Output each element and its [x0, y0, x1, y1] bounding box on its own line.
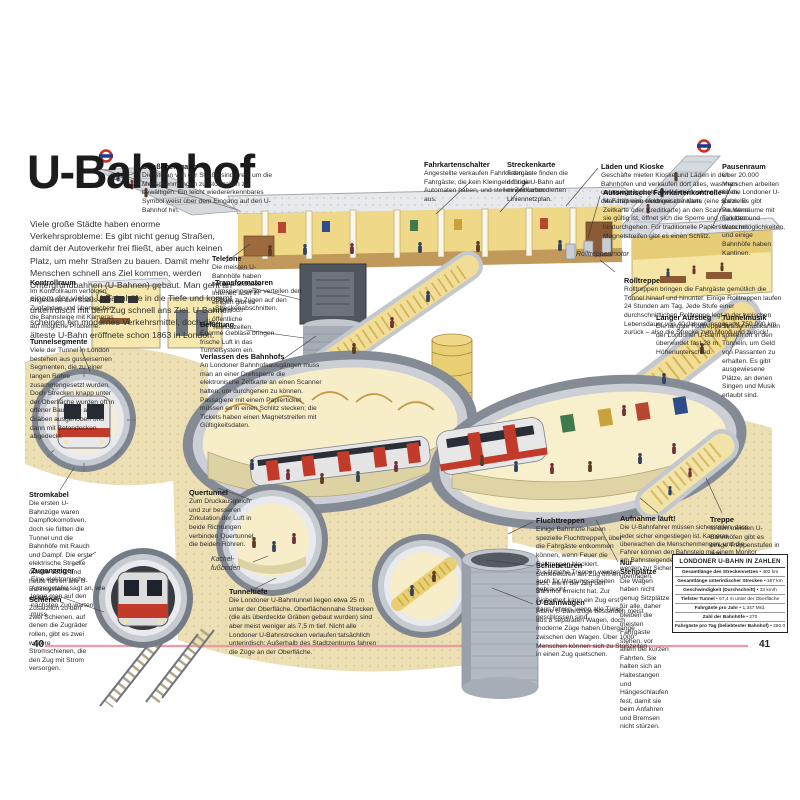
vertical-shaft [462, 549, 538, 699]
label-text: Die Wagen haben nicht genug Sitzplätze f… [620, 578, 669, 731]
label-title: Tunnelsegmente [30, 337, 116, 346]
stats-row: Gesamtlänge unterirdischer Strecken • 16… [675, 576, 785, 585]
label-title: Pausenraum [722, 162, 782, 171]
label-kachelfussboden: Kachel­fußboden [211, 556, 255, 575]
cutaway-illustration [0, 0, 800, 800]
label-title: Läden und Kioske [601, 162, 741, 171]
label-rolltreppenmotor: Rolltreppenmotor [576, 251, 628, 261]
label-title: Zuganzeiger [31, 566, 107, 575]
label-title: Tunneltiefe [229, 587, 381, 596]
label-schienen: SchienenZusätzlich zu den zwei Schienen,… [29, 595, 93, 674]
page-number-left: 40 [33, 639, 44, 650]
label-streckenkarte: StreckenkarteFahrgäste finden die richti… [507, 160, 571, 205]
label-tunneltiefe: TunneltiefeDie Londoner U-Bahntunnel lie… [229, 587, 381, 657]
label-title: Verlassen des Bahnhofs [200, 352, 324, 361]
label-text: Im Kontrollraum verfolgen Angestellte de… [30, 288, 114, 329]
label-text: Zum Druckausgleich und zur besseren Zirk… [189, 498, 253, 548]
stats-box: LONDONER U-BAHN IN ZAHLEN Gesamtlänge de… [672, 554, 788, 633]
label-text: Die längste Rolltreppe in der Londoner U… [656, 323, 729, 356]
lower-escalator-passage [372, 534, 476, 638]
label-tunnelsegmente: TunnelsegmenteViele der Tunnel in London… [30, 337, 116, 442]
label-text: Viele der Tunnel in London bestehen aus … [30, 347, 114, 440]
ubahn-roundel-sign [697, 141, 711, 152]
stats-row: Zahl der Bahnhöfe • 270 [675, 612, 785, 621]
label-title: Telefone [212, 254, 270, 263]
label-kontrollraum: KontrollraumIm Kontrollraum verfolgen An… [30, 278, 124, 331]
label-text: Enorme Gebläse bringen frische Luft in d… [200, 330, 274, 354]
label-text: Die Stufen von der Straße sind breit, um… [142, 172, 272, 213]
stats-row: Gesamtlänge des Streckennetzes • 402 km [675, 568, 785, 576]
label-quertunnel: QuertunnelZum Druckausgleich und zur bes… [189, 488, 255, 550]
stats-row: Tiefster Tunnel • 67,4 m unter der Oberf… [675, 594, 785, 603]
label-title: Schiebetüren [536, 561, 626, 570]
label-title: Straßeneingang [142, 162, 274, 171]
label-title: Kontrollraum [30, 278, 124, 287]
stats-box-title: LONDONER U-BAHN IN ZAHLEN [675, 557, 785, 568]
label-title: Rolltreppe [624, 276, 782, 285]
label-text: Fahrgäste finden die richtige U-Bahn auf… [507, 170, 568, 203]
label-title: Schienen [29, 595, 93, 604]
label-transformatoren: TransformatorenUmspannwerke verteilen de… [215, 278, 307, 314]
label-title: Nur Stehplätze [620, 558, 670, 577]
label-title: Streckenkarte [507, 160, 571, 169]
label-belueftung: BelüftungEnorme Gebläse bringen frische … [200, 320, 294, 356]
book-spread: U-Bahnhof Viele große Städte haben enorm… [0, 0, 800, 800]
label-text: Umspannwerke verteilen den Strom zu Züge… [215, 288, 302, 312]
label-title: Treppe [710, 515, 780, 524]
label-text: Straßenmusikanten spielen oft in den Tun… [722, 323, 780, 399]
ticket-hall [238, 206, 622, 270]
stats-row: Fahrgäste pro Jahr • 1,347 Mrd. [675, 603, 785, 612]
label-verlassen-des-bahnhofs: Verlassen des BahnhofsAn Londoner Bahnho… [200, 352, 324, 431]
label-title: Tunnelmusik [722, 313, 784, 322]
label-text: Die Londoner U-Bahntunnel liegen etwa 25… [229, 597, 376, 655]
label-title: Belüftung [200, 320, 294, 329]
label-title: Quertunnel [189, 488, 255, 497]
label-title: Transformatoren [215, 278, 307, 287]
label-text: Über 20.000 Menschen arbeiten für die Lo… [722, 172, 785, 256]
label-tunnelmusik: TunnelmusikStraßenmusikanten spielen oft… [722, 313, 784, 401]
stats-row: Geschwindigkeit (Durchschnitt) • 33 km/h [675, 585, 785, 594]
label-nur-stehplaetze: Nur StehplätzeDie Wagen haben nicht genu… [620, 558, 670, 732]
label-title: Fluchttreppen [536, 516, 630, 525]
page-number-right: 41 [759, 639, 770, 650]
stats-row: Fahrgäste pro Tag (beliebtester Bahnhof)… [675, 621, 785, 630]
label-text: An Londoner Bahnhofsausgängen muss man a… [200, 362, 322, 429]
label-strasseneingang: StraßeneingangDie Stufen von der Straße … [142, 162, 274, 215]
label-pausenraum: PausenraumÜber 20.000 Menschen arbeiten … [722, 162, 782, 258]
label-title: Stromkabel [29, 490, 93, 499]
label-title: Kachel­fußboden [211, 556, 255, 574]
label-title: Rolltreppenmotor [576, 251, 628, 260]
